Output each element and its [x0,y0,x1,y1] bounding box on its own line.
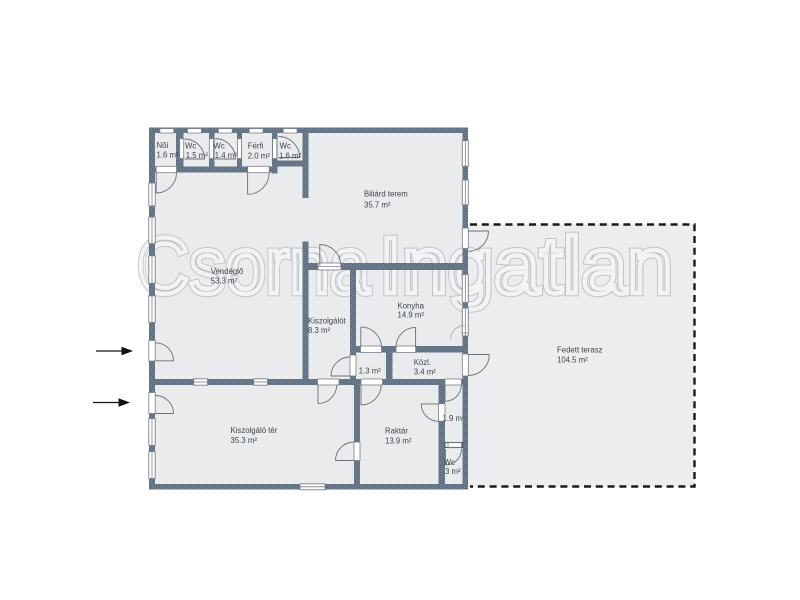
svg-text:Női: Női [157,141,169,150]
svg-text:14.9 m²: 14.9 m² [398,310,425,319]
svg-text:2.0 m²: 2.0 m² [248,152,270,161]
svg-text:Wc: Wc [280,141,291,150]
svg-text:Kiszolgálót: Kiszolgálót [308,317,347,326]
svg-text:Vendéglő: Vendéglő [211,267,244,276]
svg-text:8.3 m²: 8.3 m² [308,326,330,335]
svg-text:35.3 m²: 35.3 m² [231,436,258,445]
svg-text:1.9 m²: 1.9 m² [443,414,465,423]
svg-text:104.5 m²: 104.5 m² [557,355,588,364]
svg-text:Konyha: Konyha [398,301,425,310]
svg-text:1.5 m²: 1.5 m² [186,151,208,160]
svg-text:Wc: Wc [444,458,455,467]
svg-text:35.7 m²: 35.7 m² [364,200,391,209]
svg-text:1.4 m²: 1.4 m² [215,151,237,160]
svg-text:Közl.: Közl. [414,358,431,367]
svg-text:Fedett terasz: Fedett terasz [557,345,603,354]
svg-text:3.4 m²: 3.4 m² [414,367,436,376]
svg-text:Wc: Wc [214,141,225,150]
svg-text:53.3 m²: 53.3 m² [211,277,238,286]
svg-text:13.9 m²: 13.9 m² [385,436,412,445]
svg-text:1.6 m²: 1.6 m² [279,152,301,161]
svg-text:1.3 m²: 1.3 m² [359,366,381,375]
svg-text:3 m²: 3 m² [445,467,461,476]
svg-text:Biliárd terem: Biliárd terem [364,189,408,198]
svg-text:Wc: Wc [185,141,196,150]
svg-text:1.6 m²: 1.6 m² [157,151,179,160]
svg-text:Raktár: Raktár [385,426,408,435]
svg-text:Férfi: Férfi [248,141,264,150]
svg-text:Kiszolgáló tér: Kiszolgáló tér [231,426,278,435]
